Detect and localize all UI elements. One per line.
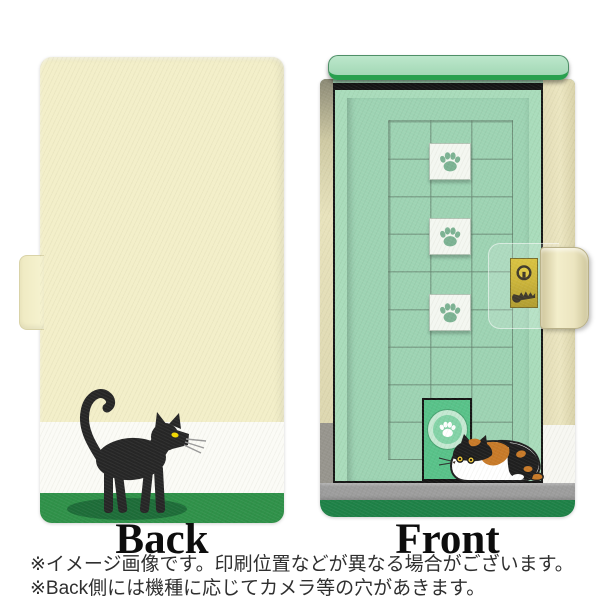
magnet-clasp-tab [19, 255, 44, 330]
floor-strip [320, 483, 575, 500]
cat-tail [531, 473, 543, 480]
cover-fold-edge-lower [320, 423, 333, 492]
paw-tile [429, 218, 471, 255]
cover-fold-edge [320, 79, 333, 423]
cat-whiskers [439, 458, 451, 465]
magnet-clasp-strap [540, 247, 589, 329]
paw-print-icon [438, 150, 462, 174]
paw-print-icon [438, 301, 462, 325]
paw-print-icon [438, 225, 462, 249]
calico-cat-illustration [438, 427, 558, 485]
note-line: ※Back側には機種に応じてカメラ等の穴があきます。 [30, 577, 595, 600]
product-image: Back Front ※イメージ画像です。印刷位置などが異なる場合がございます。… [0, 0, 600, 600]
door-awning-bar [328, 55, 569, 80]
note-line: ※イメージ画像です。印刷位置などが異なる場合がございます。 [30, 553, 595, 577]
back-cover-panel [40, 57, 284, 523]
paw-tile [429, 294, 471, 331]
paw-tile [429, 143, 471, 180]
footnotes: ※イメージ画像です。印刷位置などが異なる場合がございます。 ※Back側には機種… [30, 553, 595, 600]
black-cat-illustration [60, 385, 210, 520]
front-cover-panel [320, 55, 575, 517]
